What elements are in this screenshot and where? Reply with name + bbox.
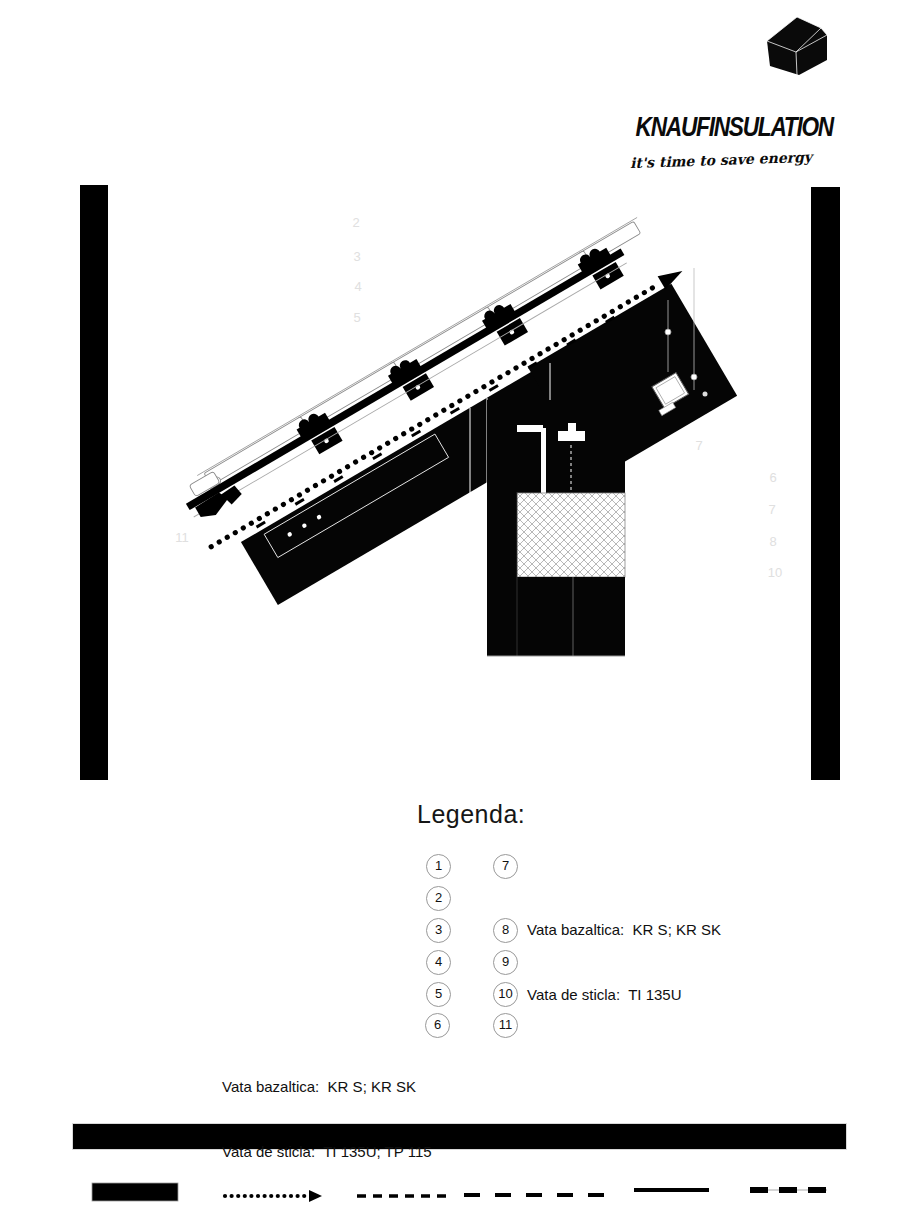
callout-number: 6 (769, 470, 776, 485)
note-line: Vata de sticla: TI 135U (527, 984, 721, 1006)
roof-detail-drawing: 2 3 4 5 11 7 6 7 8 10 (0, 0, 920, 1226)
legend-title: Legenda: (417, 800, 525, 829)
wall-layer-gap (541, 428, 546, 493)
masonry-crosshatch-block (517, 493, 625, 577)
leader-dot (691, 374, 697, 380)
wall-section (487, 400, 625, 656)
legend-item-7: 7 (493, 854, 518, 879)
document-page: knaufinsulation it's time to save energy (0, 0, 920, 1226)
anchor-stem (568, 423, 576, 432)
note-line: Vata bazaltica: KR S; KR SK (222, 1076, 432, 1098)
roof-slope-assembly (174, 211, 751, 665)
solid-fill-swatch (92, 1183, 178, 1201)
legend-item-3: 3 (426, 918, 451, 943)
callout-number: 7 (695, 438, 702, 453)
legend-note-right: Vata bazaltica: KR S; KR SK Vata de stic… (527, 876, 721, 1048)
legend-item-8: 8 (493, 918, 518, 943)
note-line: Vata bazaltica: KR S; KR SK (527, 919, 721, 941)
legend-item-10: 10 (493, 982, 518, 1007)
line-style-samples (92, 1183, 827, 1202)
legend-item-9: 9 (493, 950, 518, 975)
wall-inner-leaf (487, 493, 517, 656)
callout-number: 2 (352, 215, 359, 230)
callout-number: 8 (769, 534, 776, 549)
legend-note-left: Vata bazaltica: KR S; KR SK Vata de stic… (222, 1033, 432, 1205)
roof-tile (204, 417, 308, 486)
callout-number: 11 (175, 530, 189, 545)
note-line: Vata de sticla: TI 135U; TP 115 (222, 1141, 432, 1163)
callout-number: 10 (768, 565, 782, 580)
leader-dot (665, 329, 671, 335)
callout-number: 7 (768, 502, 775, 517)
anchor-plate (558, 431, 585, 441)
callout-number: 5 (353, 310, 360, 325)
callout-number: 3 (353, 249, 360, 264)
wall-head (487, 400, 625, 493)
leader-dot (703, 392, 708, 397)
callout-number: 4 (354, 279, 361, 294)
legend-item-5: 5 (426, 982, 451, 1007)
legend-item-1: 1 (426, 854, 451, 879)
legend-item-2: 2 (426, 886, 451, 911)
legend-item-4: 4 (426, 950, 451, 975)
wallplate-gap (517, 425, 543, 432)
legend-item-11: 11 (493, 1013, 518, 1038)
wall-lower-mass (517, 577, 625, 656)
